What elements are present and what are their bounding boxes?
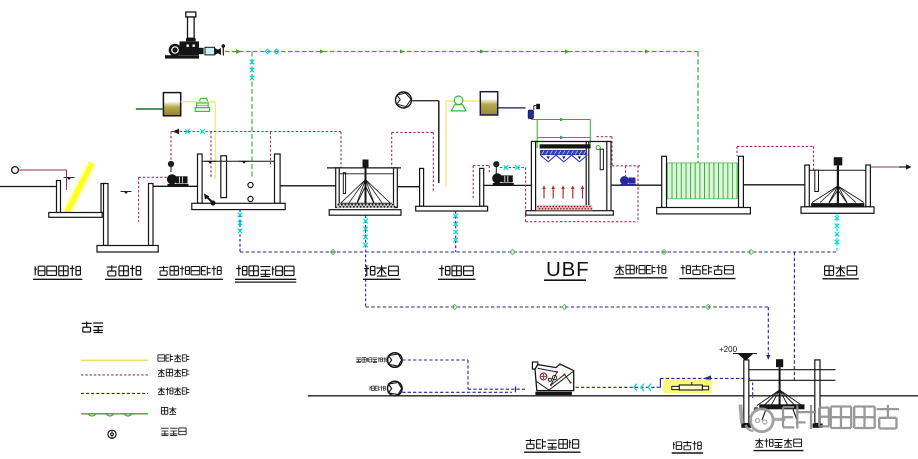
svg-text:UBF: UBF [546,258,589,281]
svg-text:+200: +200 [719,345,738,354]
